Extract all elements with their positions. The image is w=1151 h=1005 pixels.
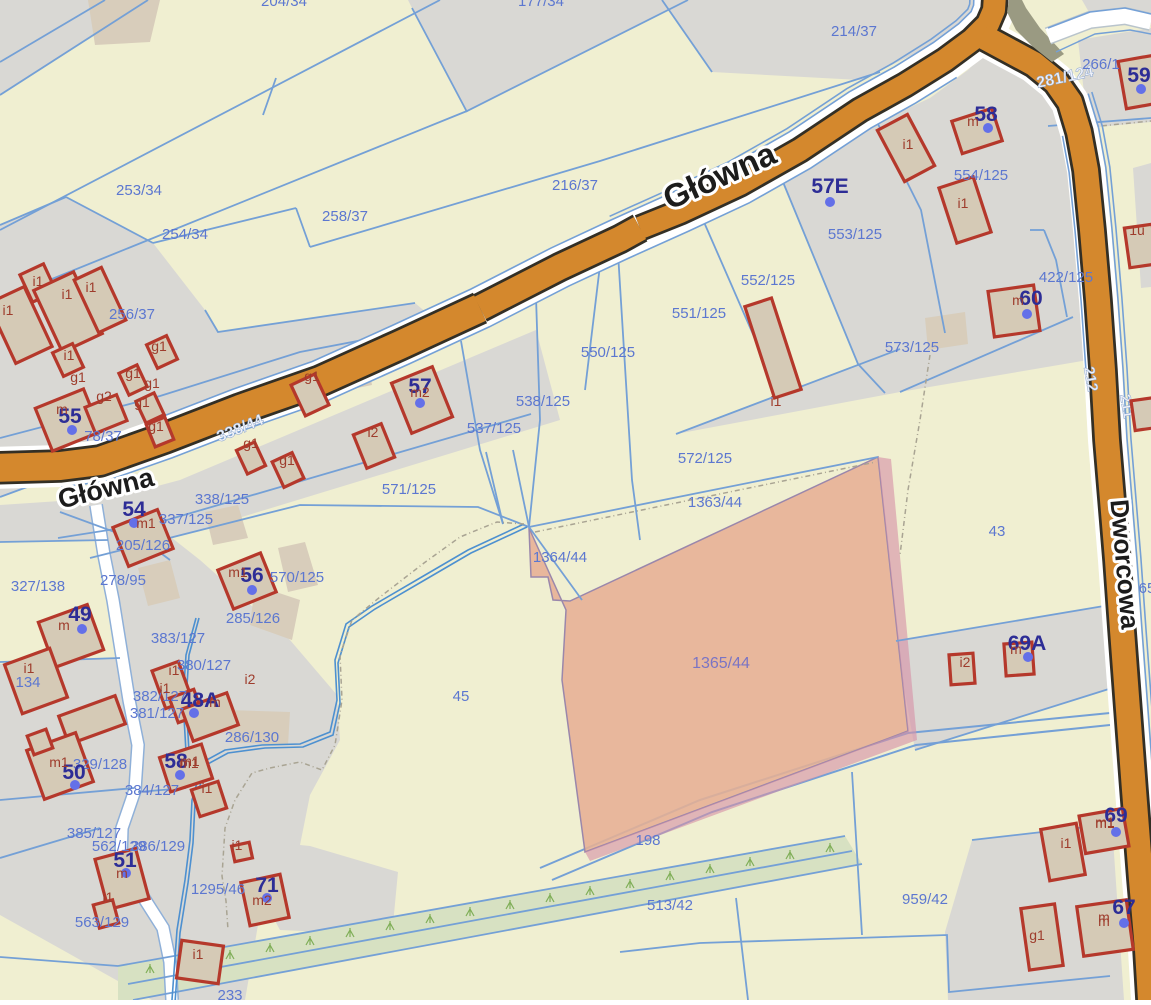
svg-text:381/127: 381/127 xyxy=(130,705,184,722)
svg-text:m1: m1 xyxy=(136,515,156,531)
svg-text:57E: 57E xyxy=(811,175,848,198)
svg-text:m: m xyxy=(56,401,68,417)
svg-text:i1: i1 xyxy=(86,279,97,295)
svg-text:285/126: 285/126 xyxy=(226,610,280,627)
svg-text:286/130: 286/130 xyxy=(225,729,279,746)
svg-text:552/125: 552/125 xyxy=(741,272,795,289)
svg-text:214/37: 214/37 xyxy=(831,23,877,40)
svg-text:177/34: 177/34 xyxy=(518,0,564,10)
svg-text:i1: i1 xyxy=(169,662,180,678)
svg-text:254/34: 254/34 xyxy=(162,226,208,243)
svg-text:198: 198 xyxy=(635,832,660,849)
svg-text:g2: g2 xyxy=(96,388,112,404)
svg-text:134: 134 xyxy=(15,674,40,691)
svg-text:g1: g1 xyxy=(1029,927,1045,943)
svg-text:43: 43 xyxy=(989,523,1006,540)
svg-text:380/127: 380/127 xyxy=(177,657,231,674)
svg-text:i1: i1 xyxy=(33,273,44,289)
svg-text:45: 45 xyxy=(453,688,470,705)
svg-text:959/42: 959/42 xyxy=(902,891,948,908)
svg-text:g1: g1 xyxy=(134,394,150,410)
svg-text:422/125: 422/125 xyxy=(1039,269,1093,286)
svg-text:551/125: 551/125 xyxy=(672,305,726,322)
svg-text:g1: g1 xyxy=(148,418,164,434)
svg-text:m: m xyxy=(1010,641,1022,657)
svg-text:216/37: 216/37 xyxy=(552,177,598,194)
svg-text:537/125: 537/125 xyxy=(467,420,521,437)
svg-text:554/125: 554/125 xyxy=(954,167,1008,184)
svg-text:g1: g1 xyxy=(125,365,141,381)
svg-text:553/125: 553/125 xyxy=(828,226,882,243)
svg-text:1364/44: 1364/44 xyxy=(533,549,587,566)
svg-text:i1: i1 xyxy=(903,136,914,152)
svg-text:572/125: 572/125 xyxy=(678,450,732,467)
svg-text:g1: g1 xyxy=(304,368,320,384)
svg-text:1363/44: 1363/44 xyxy=(688,494,742,511)
svg-text:337/125: 337/125 xyxy=(159,511,213,528)
svg-text:g1: g1 xyxy=(70,369,86,385)
svg-text:538/125: 538/125 xyxy=(516,393,570,410)
svg-text:m: m xyxy=(116,865,128,881)
svg-text:204/34: 204/34 xyxy=(261,0,307,10)
svg-text:i1: i1 xyxy=(193,946,204,962)
svg-text:i2: i2 xyxy=(245,671,256,687)
svg-text:383/127: 383/127 xyxy=(151,630,205,647)
svg-text:78/37: 78/37 xyxy=(84,428,122,445)
svg-text:266/1: 266/1 xyxy=(1082,56,1120,73)
svg-text:278/95: 278/95 xyxy=(100,572,146,589)
svg-text:i1: i1 xyxy=(232,837,243,853)
svg-text:258/37: 258/37 xyxy=(322,208,368,225)
svg-text:m1: m1 xyxy=(49,754,69,770)
svg-text:384/127: 384/127 xyxy=(125,782,179,799)
svg-text:550/125: 550/125 xyxy=(581,344,635,361)
svg-text:49: 49 xyxy=(68,603,91,626)
svg-text:g1: g1 xyxy=(151,338,167,354)
svg-text:386/129: 386/129 xyxy=(131,838,185,855)
svg-text:m: m xyxy=(58,617,70,633)
svg-text:m1: m1 xyxy=(180,753,200,769)
svg-text:i1: i1 xyxy=(62,286,73,302)
svg-text:i1: i1 xyxy=(160,680,171,696)
svg-text:513/42: 513/42 xyxy=(647,897,693,914)
svg-text:338/125: 338/125 xyxy=(195,491,249,508)
svg-text:253/34: 253/34 xyxy=(116,182,162,199)
svg-text:1295/46: 1295/46 xyxy=(191,881,245,898)
svg-text:m: m xyxy=(209,694,221,710)
svg-text:i1: i1 xyxy=(202,780,213,796)
svg-text:i2: i2 xyxy=(960,654,971,670)
svg-text:g1: g1 xyxy=(243,435,259,451)
svg-text:i1: i1 xyxy=(1061,835,1072,851)
svg-text:i1: i1 xyxy=(103,889,114,905)
svg-text:m2: m2 xyxy=(410,384,430,400)
svg-text:i1: i1 xyxy=(24,660,35,676)
svg-text:1u: 1u xyxy=(1129,222,1145,238)
svg-text:m: m xyxy=(967,113,979,129)
svg-text:i2: i2 xyxy=(368,424,379,440)
svg-text:i1: i1 xyxy=(64,347,75,363)
svg-text:570/125: 570/125 xyxy=(270,569,324,586)
svg-text:205/126: 205/126 xyxy=(116,537,170,554)
svg-text:m1: m1 xyxy=(1095,815,1115,831)
svg-text:573/125: 573/125 xyxy=(885,339,939,356)
svg-text:m2: m2 xyxy=(252,892,272,908)
svg-text:i1: i1 xyxy=(771,393,782,409)
svg-text:i1: i1 xyxy=(958,195,969,211)
svg-text:m: m xyxy=(1012,292,1024,308)
svg-text:563/129: 563/129 xyxy=(75,914,129,931)
svg-text:g1: g1 xyxy=(144,375,160,391)
svg-text:571/125: 571/125 xyxy=(382,481,436,498)
svg-text:g1: g1 xyxy=(279,452,295,468)
svg-text:256/37: 256/37 xyxy=(109,306,155,323)
svg-text:59: 59 xyxy=(1127,64,1150,87)
svg-text:65: 65 xyxy=(1139,580,1151,597)
svg-text:i1: i1 xyxy=(3,302,14,318)
svg-text:m1: m1 xyxy=(228,564,248,580)
svg-text:m: m xyxy=(1098,913,1110,929)
svg-text:327/138: 327/138 xyxy=(11,578,65,595)
svg-text:1365/44: 1365/44 xyxy=(692,655,750,672)
svg-text:67: 67 xyxy=(1112,896,1135,919)
svg-text:233: 233 xyxy=(217,987,242,1000)
